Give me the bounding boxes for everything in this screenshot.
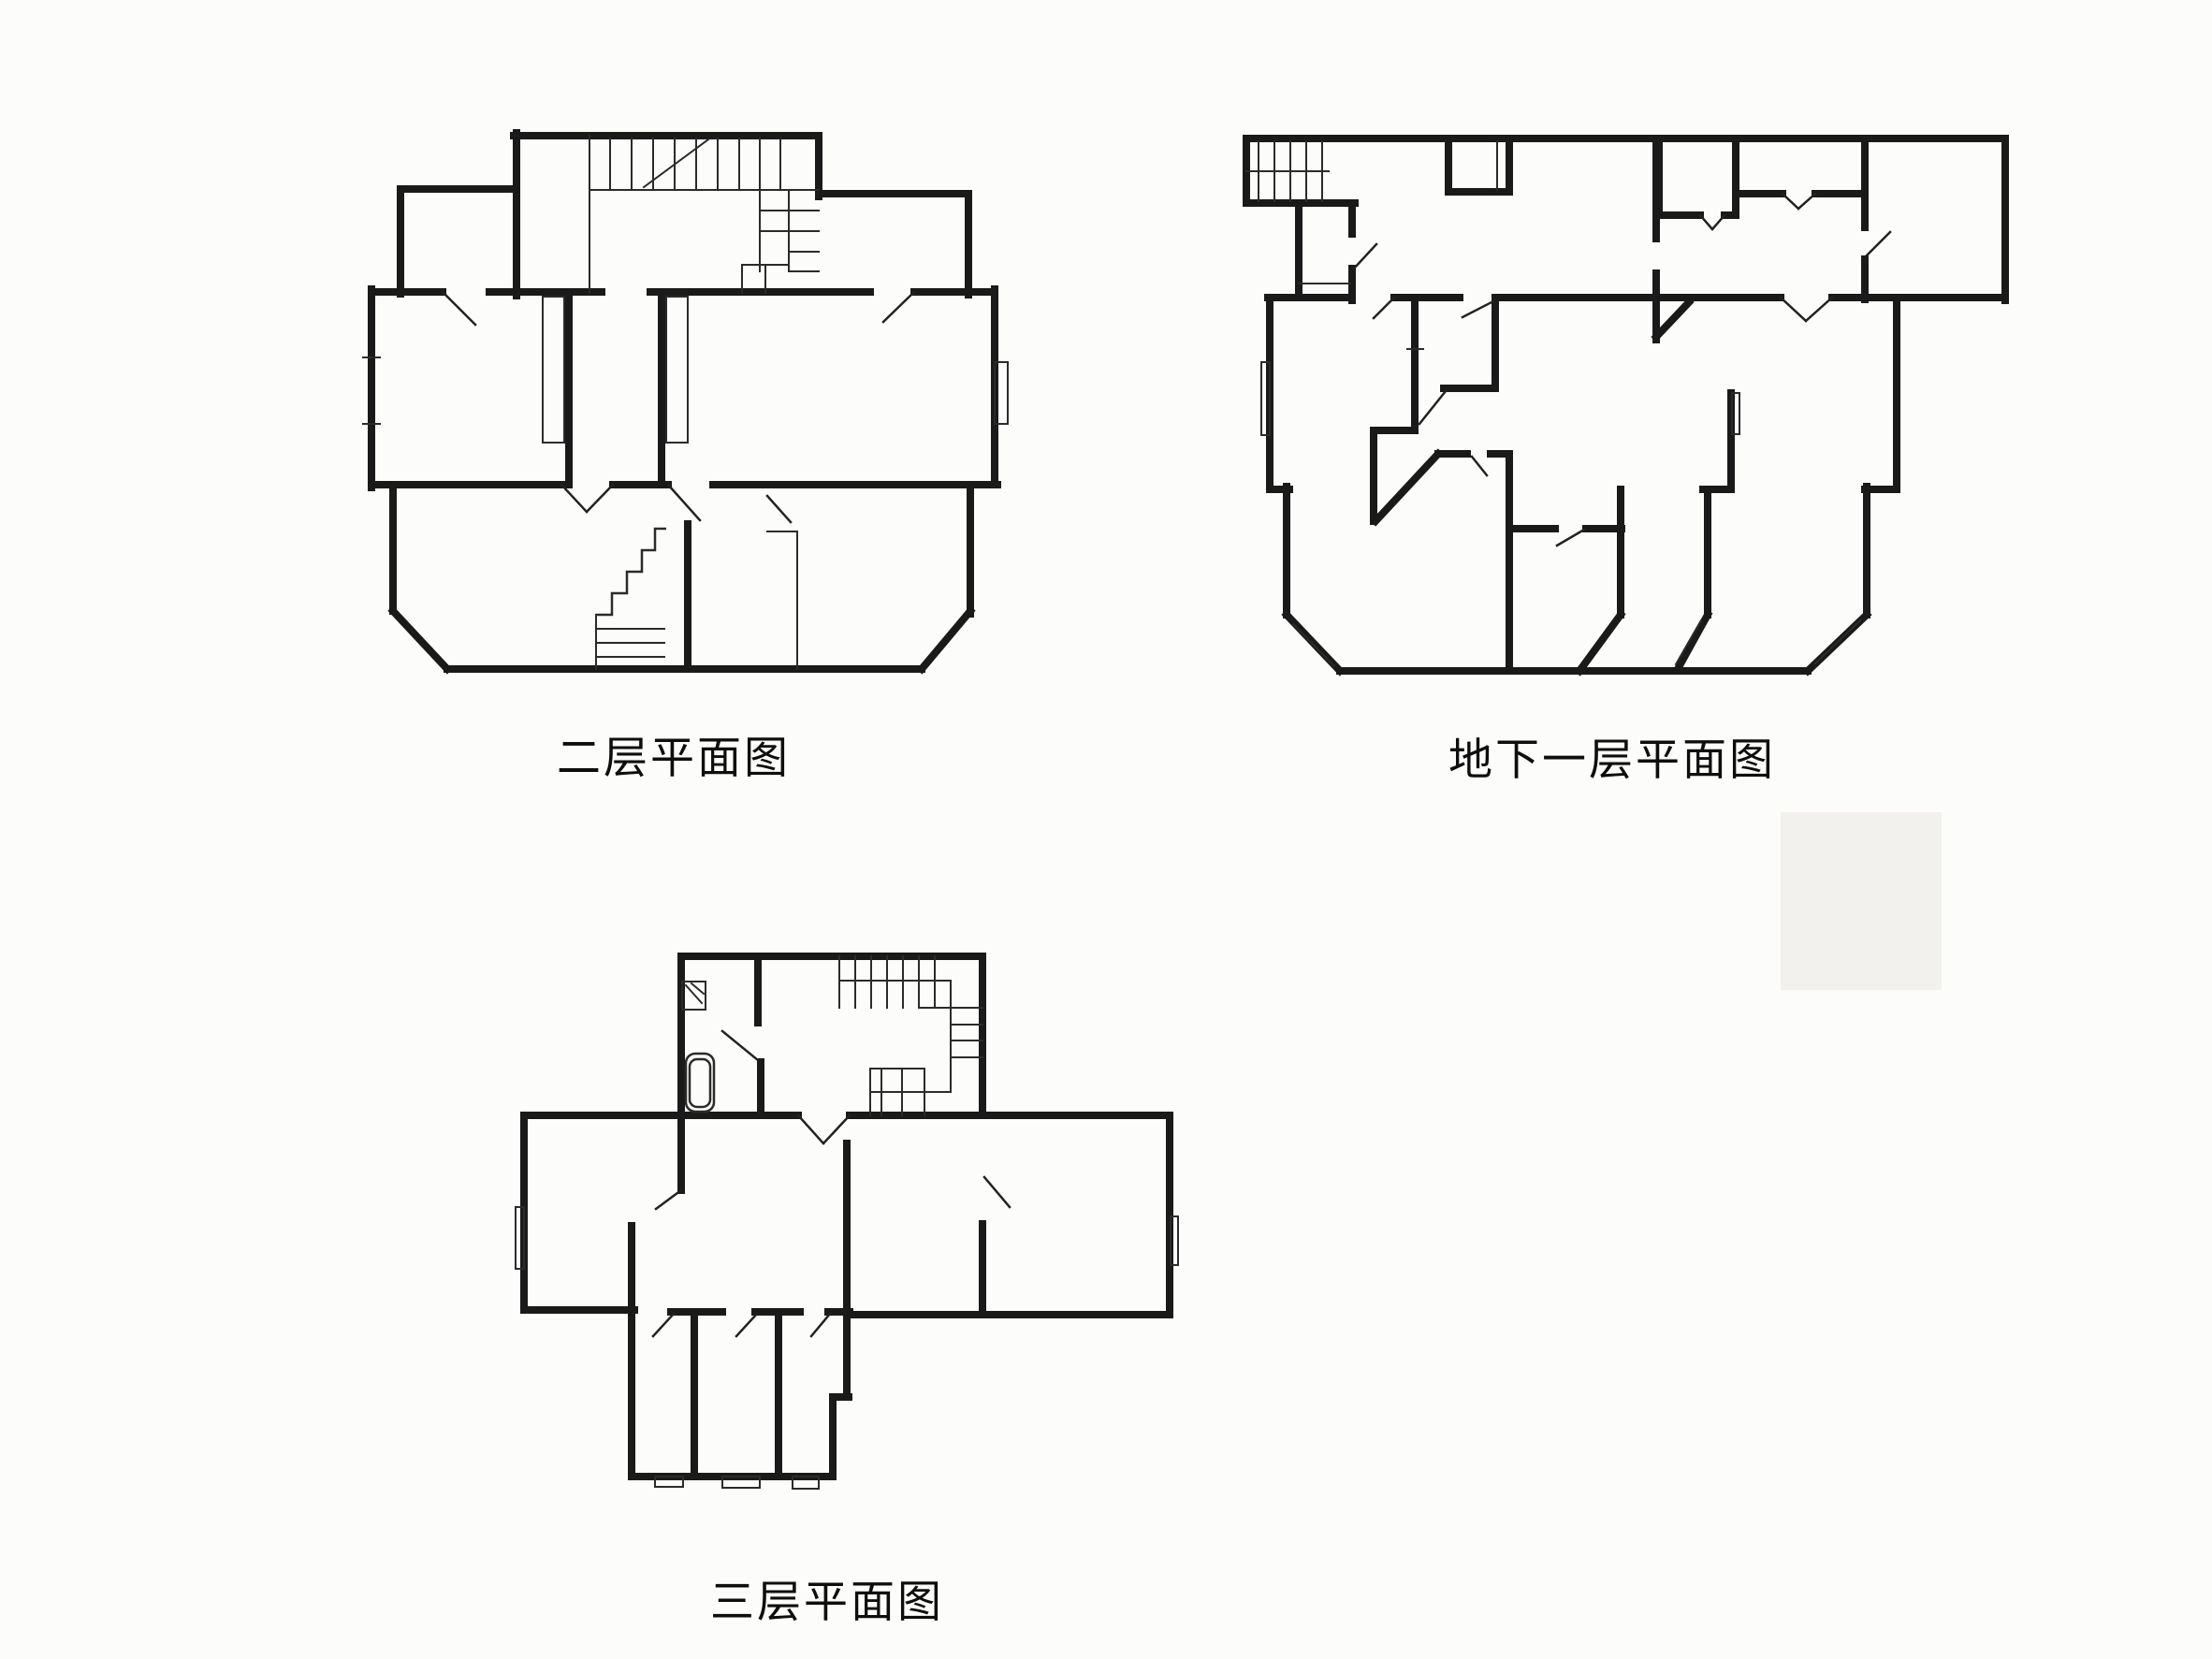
floor-plan-canvas <box>0 0 2212 1659</box>
floor-plan-sheet: 二层平面图 地下一层平面图 三层平面图 <box>0 0 2212 1659</box>
plan-third-floor <box>516 956 1178 1489</box>
caption-second-floor-plan: 二层平面图 <box>557 734 791 782</box>
caption-third-floor-plan: 三层平面图 <box>710 1578 944 1626</box>
caption-basement-floor-plan: 地下一层平面图 <box>1448 735 1776 784</box>
plan-basement-floor <box>1246 138 2005 671</box>
plan-second-floor <box>363 133 1008 669</box>
